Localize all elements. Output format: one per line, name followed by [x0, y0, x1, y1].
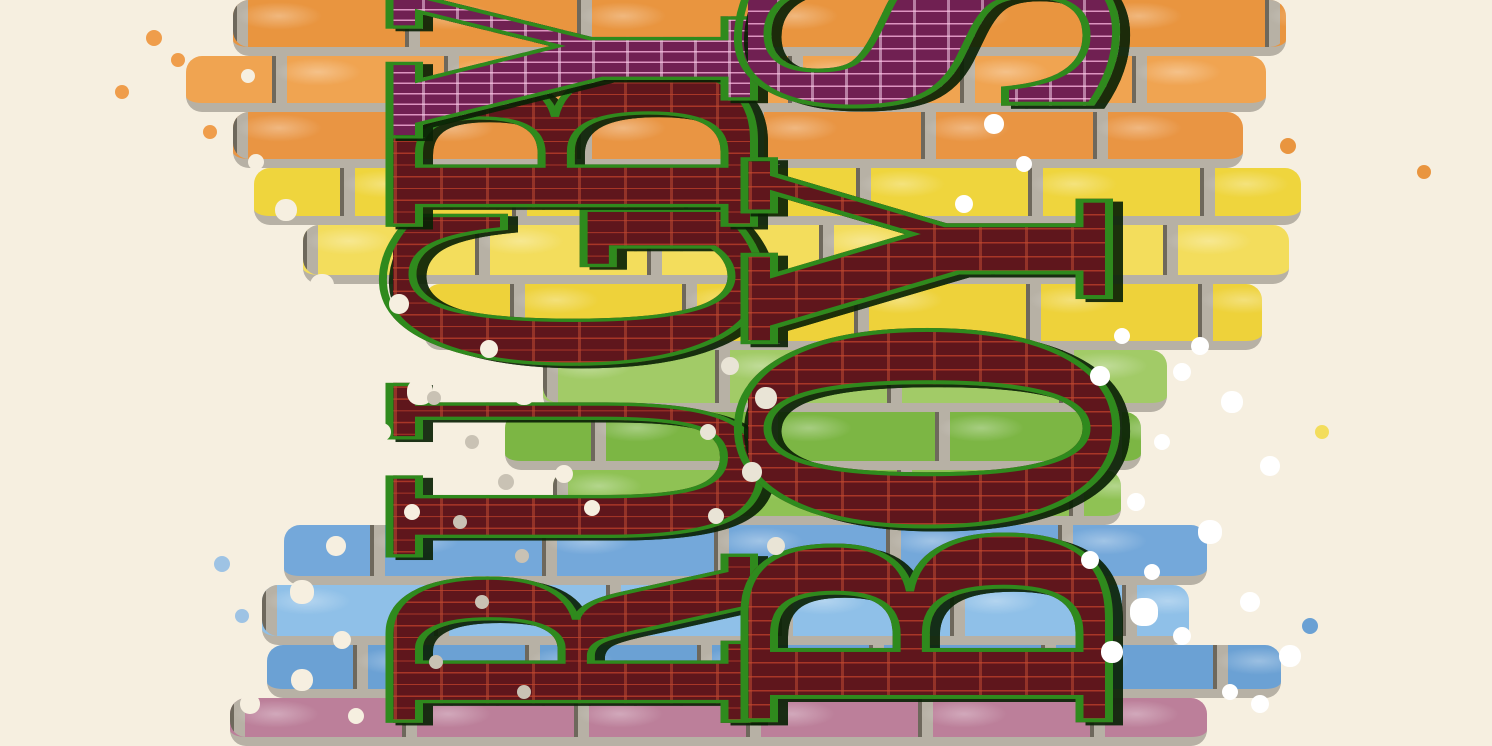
graffiti-letter: S: [748, 0, 1120, 123]
graffiti-letter: Y: [748, 162, 1120, 340]
graffiti-column-right: BOYS: [748, 0, 1120, 735]
graffiti-letter: O: [748, 319, 1120, 537]
graffiti-letter: B: [748, 521, 1120, 732]
poster-background: RUGBY BOYS: [0, 0, 1492, 746]
